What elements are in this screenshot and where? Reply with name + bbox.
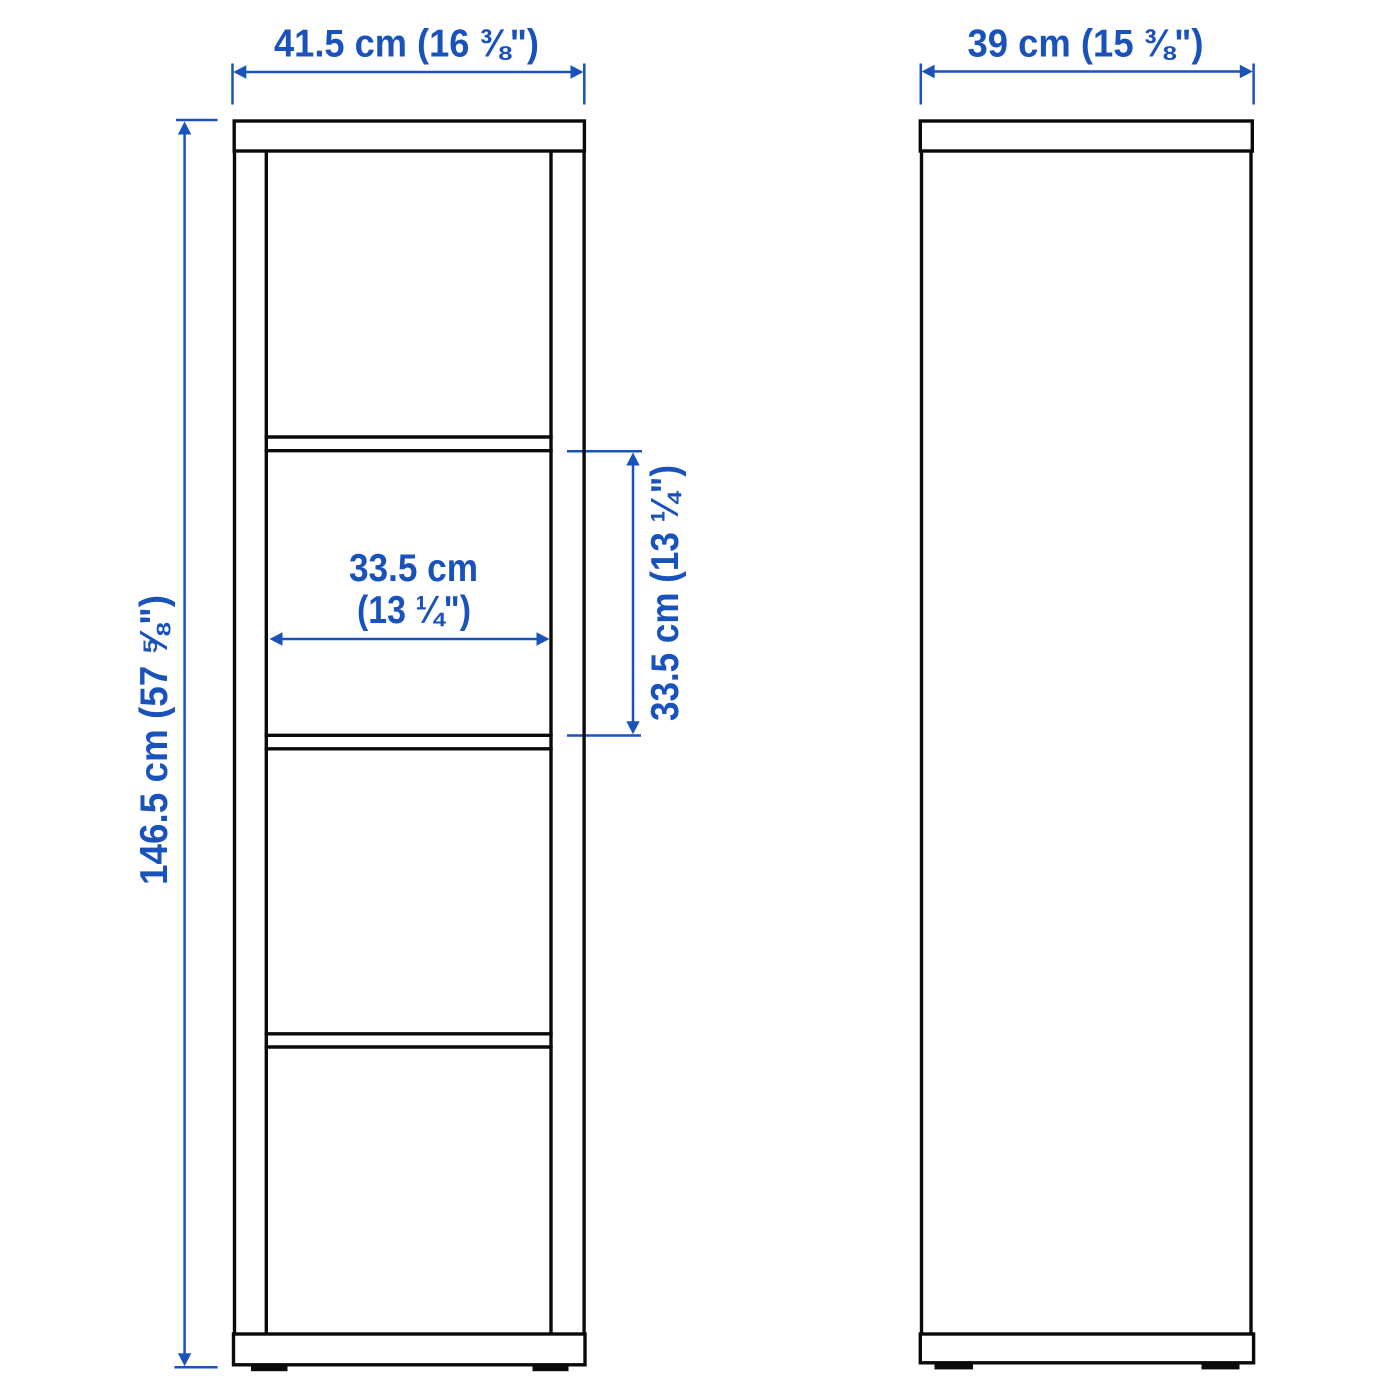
svg-text:39 cm (15 ⅜"): 39 cm (15 ⅜")	[968, 23, 1204, 66]
svg-text:33.5 cm: 33.5 cm	[349, 547, 478, 590]
svg-text:41.5 cm (16 ⅜"): 41.5 cm (16 ⅜")	[274, 23, 539, 66]
svg-text:146.5 cm (57 ⅝"): 146.5 cm (57 ⅝")	[133, 595, 176, 885]
svg-text:33.5 cm (13 ¼"): 33.5 cm (13 ¼")	[644, 465, 687, 721]
svg-text:(13 ¼"): (13 ¼")	[357, 589, 471, 632]
